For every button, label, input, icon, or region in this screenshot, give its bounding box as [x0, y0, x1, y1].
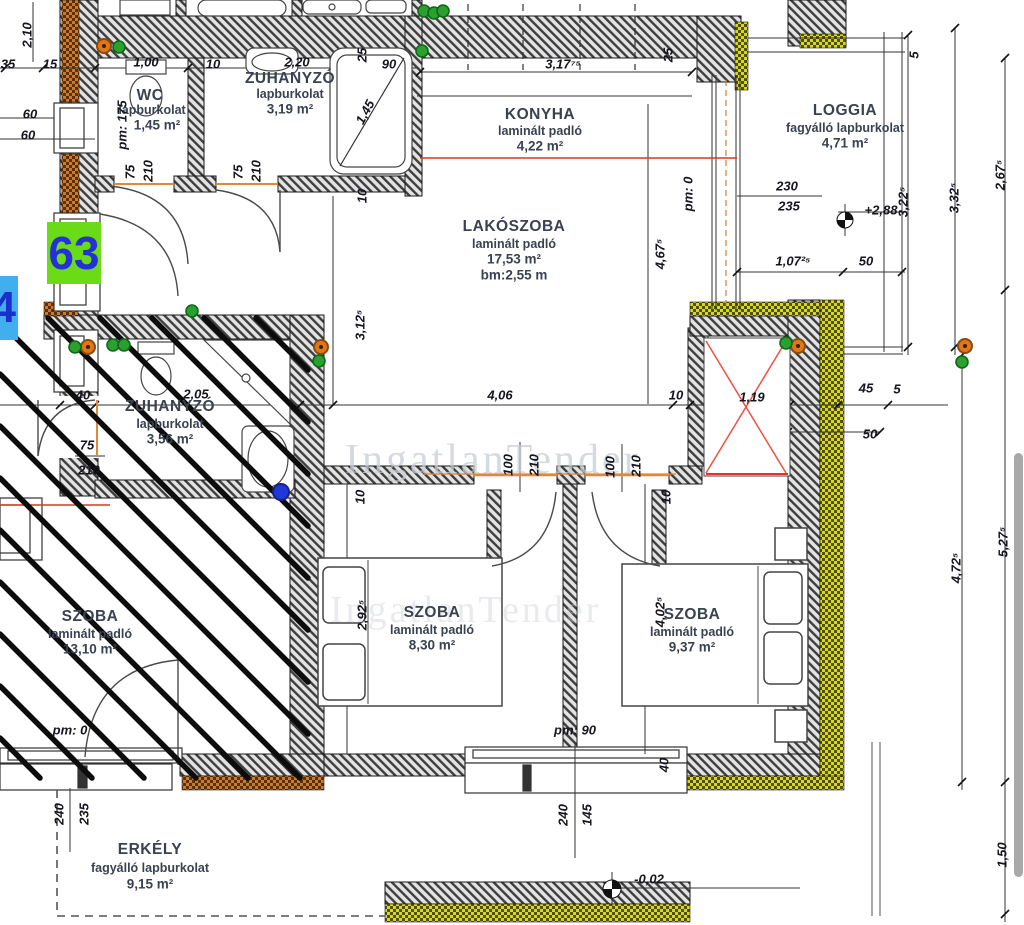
dim-label: 210 [249, 160, 264, 182]
dim-label: 1,00 [133, 55, 158, 70]
dim-label: 2,05 [183, 387, 208, 402]
dim-label: 3,17⁷⁵ [545, 57, 581, 72]
dim-label: 210 [629, 455, 644, 477]
dim-label: 100 [603, 456, 618, 478]
dim-label: 230 [776, 179, 798, 194]
dim-label: 240 [556, 804, 571, 826]
dim-label: 25 [355, 48, 370, 62]
dim-label: 5,27⁵ [996, 527, 1011, 558]
room-area: 13,10 m² [63, 642, 117, 657]
unit-number: 63 [48, 226, 99, 280]
room-area: 9,37 m² [669, 640, 716, 655]
level-label: -0,02 [634, 872, 664, 887]
room-name: LOGGIA [813, 102, 877, 120]
dim-label: 25 [661, 48, 676, 62]
dim-label: 45 [859, 381, 873, 396]
room-finish: laminált padló [472, 237, 556, 251]
dim-label: 60 [23, 107, 37, 122]
dim-label: 10 [206, 57, 220, 72]
room-height: bm:2,55 m [481, 268, 548, 283]
room-name: ERKÉLY [118, 841, 182, 859]
dim-label: 10 [669, 388, 683, 403]
dim-label: 1,45 [352, 97, 377, 126]
dim-label: 145 [580, 804, 595, 826]
dim-label: 2,92⁵ [355, 600, 370, 631]
dim-label: 2,20 [284, 55, 309, 70]
room-area: 9,15 m² [127, 877, 174, 892]
unit-number-badge: 63 [47, 222, 101, 284]
dim-label: 90 [382, 57, 396, 72]
dim-label: 60 [21, 128, 35, 143]
dim-label: 210 [78, 463, 100, 478]
dim-label: 10 [355, 189, 370, 203]
dim-label: 4,02⁵ [653, 597, 668, 628]
dim-label: 75 [231, 165, 246, 179]
dim-label: 2,67⁵ [993, 160, 1008, 191]
dim-label: 1,50 [995, 842, 1010, 867]
dim-label: 3,12⁵ [353, 310, 368, 341]
room-name: SZOBA [664, 606, 721, 624]
neighbor-unit-badge: 4 [0, 276, 18, 340]
dim-label: 40 [76, 388, 90, 403]
room-finish: fagyálló lapburkolat [91, 861, 209, 875]
dim-label: pm: 175 [115, 100, 130, 149]
dim-label: 10 [659, 490, 674, 504]
dim-label: 4,72⁵ [949, 553, 964, 584]
dim-label: 5 [907, 51, 922, 58]
dim-label: 1,19 [739, 390, 764, 405]
room-area: 17,53 m² [487, 252, 541, 267]
dim-label: 5 [893, 382, 900, 397]
dim-label: 35 [1, 57, 15, 72]
room-area: 1,45 m² [134, 118, 181, 133]
dim-label: 210 [141, 160, 156, 182]
room-name: ZUHANYZÓ [245, 70, 335, 88]
room-area: 3,19 m² [267, 102, 314, 117]
room-name: SZOBA [404, 604, 461, 622]
dim-label: 2,10 [20, 22, 35, 47]
dim-label: 210 [527, 454, 542, 476]
dim-label: 15 [43, 57, 57, 72]
dim-label: pm: 90 [554, 723, 596, 738]
dim-label: 1,07²⁵ [776, 254, 811, 269]
room-finish: lapburkolat [136, 417, 203, 431]
dim-label: 40 [657, 758, 672, 772]
dim-label: 100 [501, 454, 516, 476]
dim-label: 10 [353, 490, 368, 504]
scrollbar-thumb[interactable] [1014, 453, 1023, 877]
room-name: LAKÓSZOBA [463, 218, 566, 236]
room-name: SZOBA [62, 608, 119, 626]
dim-label: 4,06 [487, 388, 512, 403]
room-finish: laminált padló [390, 623, 474, 637]
room-area: 8,30 m² [409, 638, 456, 653]
room-area: 4,71 m² [822, 136, 869, 151]
dim-label: 3,22⁵ [896, 187, 911, 218]
dim-label: pm: 0 [681, 177, 696, 212]
level-label: +2,88 [865, 203, 898, 218]
floorplan-page: IngatlanTender IngatlanTender WC lapburk… [0, 0, 1024, 925]
dim-label: 235 [778, 199, 800, 214]
dim-label: 50 [863, 427, 877, 442]
dim-label: 75 [123, 165, 138, 179]
dim-label: 75 [80, 438, 94, 453]
room-finish: fagyálló lapburkolat [786, 121, 904, 135]
dim-label: 4,67⁵ [653, 239, 668, 270]
room-finish: lapburkolat [256, 87, 323, 101]
dim-label: 3,32⁵ [947, 183, 962, 214]
room-finish: laminált padló [48, 627, 132, 641]
room-area: 4,22 m² [517, 139, 564, 154]
dim-label: 235 [77, 803, 92, 825]
neighbor-unit-number: 4 [0, 283, 18, 333]
room-finish: laminált padló [498, 124, 582, 138]
room-area: 3,56 m² [147, 432, 194, 447]
dim-label: pm: 0 [53, 723, 88, 738]
dim-label: 50 [859, 254, 873, 269]
room-name: KONYHA [505, 106, 575, 124]
labels-layer: WC lapburkolat 1,45 m² ZUHANYZÓ lapburko… [0, 0, 1024, 925]
dim-label: 240 [52, 803, 67, 825]
